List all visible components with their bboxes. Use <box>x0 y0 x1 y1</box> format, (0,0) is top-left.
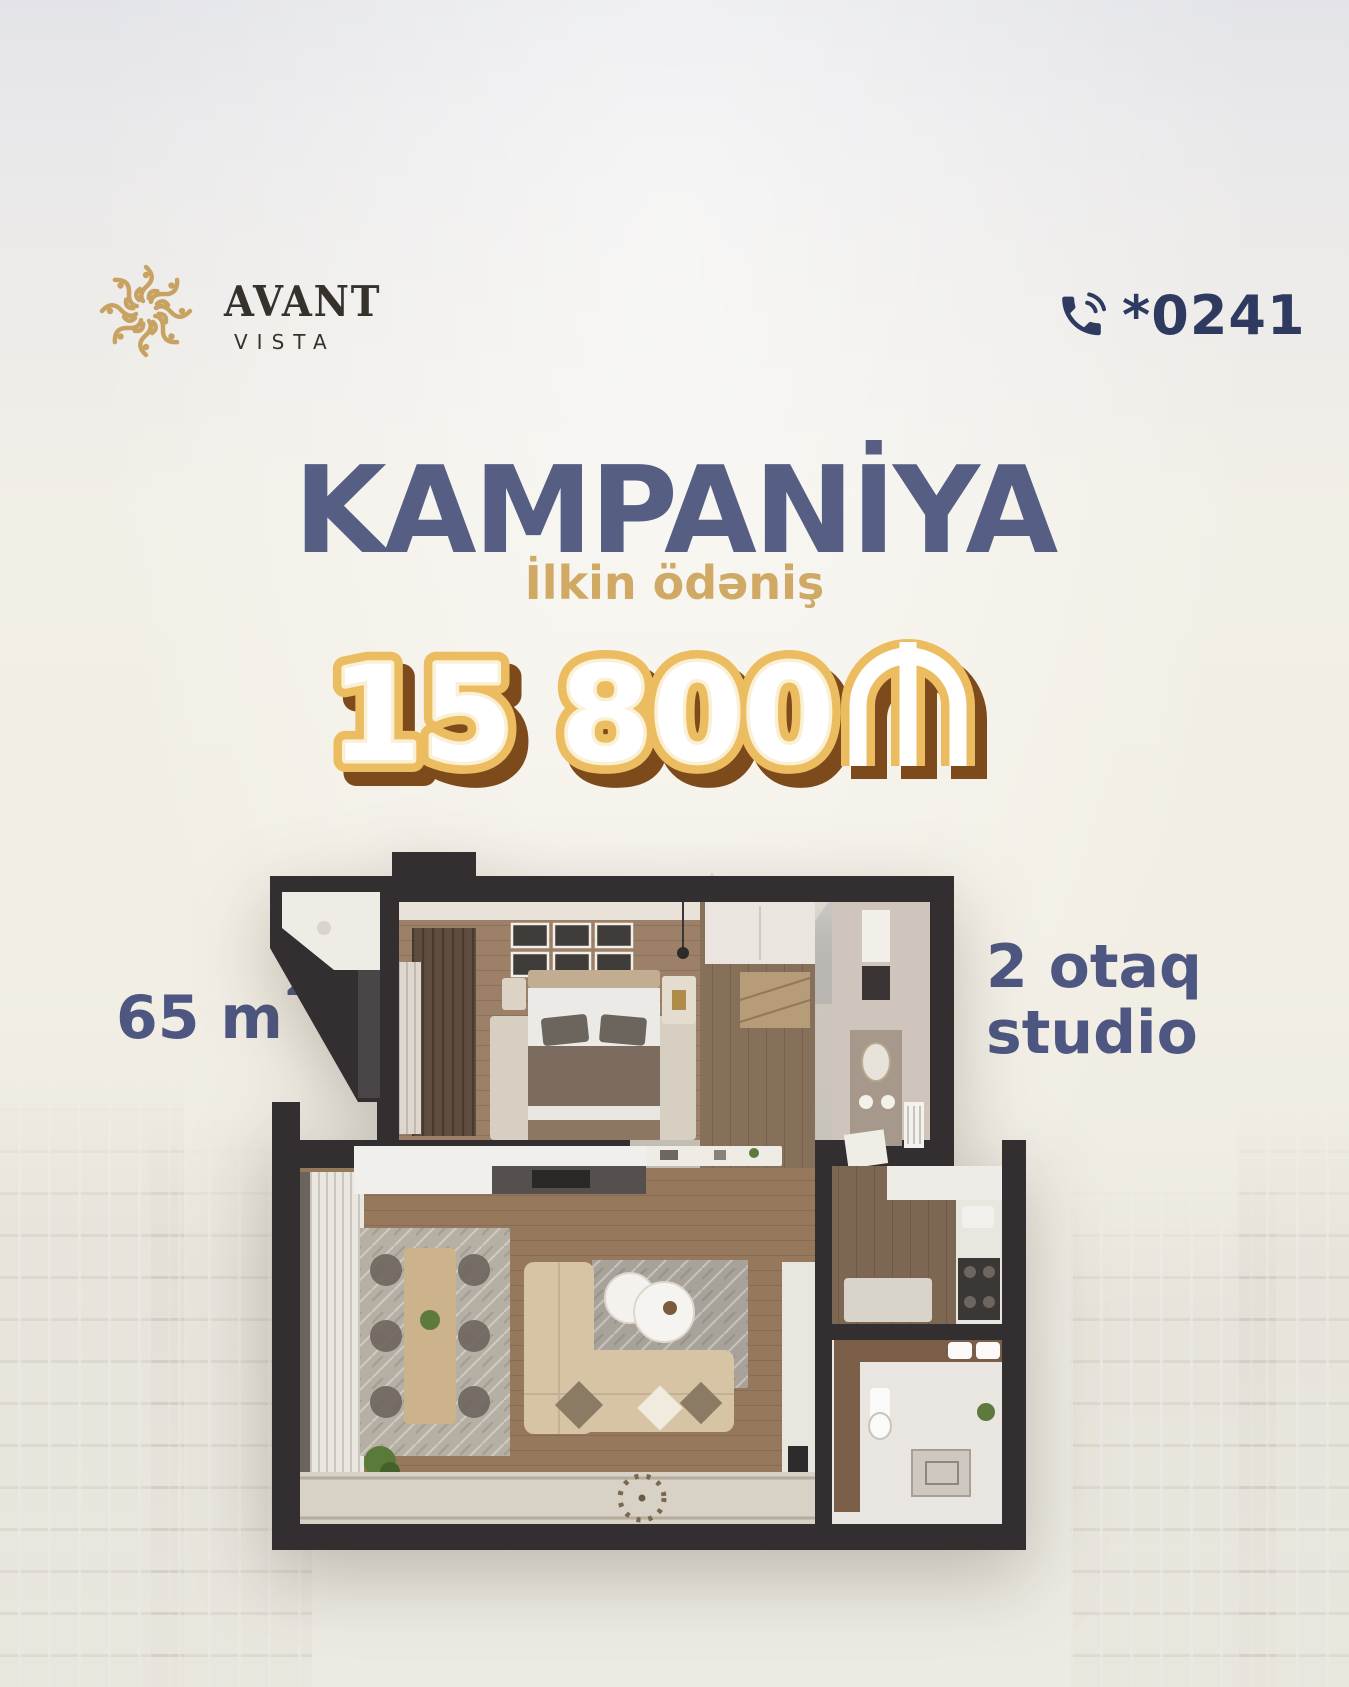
coffee-table-large <box>634 1282 694 1342</box>
manat-symbol-icon <box>858 642 969 779</box>
kitchen-cabinets <box>887 1166 1002 1200</box>
cooktop <box>532 1170 590 1188</box>
phone-contact: *0241 <box>1056 284 1306 347</box>
nightstand-left <box>502 978 526 1010</box>
floor-clock-area <box>300 1472 815 1524</box>
brand-name-top: AVANT <box>224 281 381 323</box>
area-value: 65 m <box>116 983 283 1053</box>
brand-logo: AVANT VISTA <box>90 255 395 367</box>
dining-table <box>404 1248 456 1424</box>
brand-name-bottom: VISTA <box>234 332 395 352</box>
kitchen-island <box>844 1278 932 1322</box>
sink-1 <box>948 1342 972 1359</box>
brand-emblem-icon <box>90 255 202 367</box>
plan-bathroom-top <box>832 902 930 1169</box>
gas-stove <box>958 1258 1000 1320</box>
phone-icon <box>1056 290 1108 342</box>
price-text: 15 800 <box>330 638 835 792</box>
plan-bathroom-bottom <box>832 1340 1002 1524</box>
floor-plan <box>262 850 1030 1564</box>
plan-kitchen <box>832 1166 1002 1324</box>
campaign-subtitle: İlkin ödəniş <box>0 560 1349 606</box>
building-silhouette-right-2 <box>1236 1108 1349 1687</box>
kitchen-sink <box>962 1206 994 1228</box>
plan-bedroom <box>399 902 700 1140</box>
price-display: 15 800 15 800 15 800 <box>300 612 1000 796</box>
plan-living-room <box>300 1146 815 1524</box>
brand-name: AVANT VISTA <box>224 255 395 352</box>
shower <box>912 1450 970 1496</box>
phone-number: *0241 <box>1122 284 1306 347</box>
toilet <box>869 1388 891 1439</box>
floor-plan-svg <box>262 850 1030 1560</box>
mirror <box>862 1043 890 1081</box>
sink-2 <box>976 1342 1000 1359</box>
campaign-title: KAMPANİYA <box>0 452 1349 572</box>
bed <box>528 970 660 1140</box>
bath-plant <box>977 1403 995 1421</box>
poster-background: AVANT VISTA *0241 KAMPANİYA İlkin ödəniş… <box>0 0 1349 1687</box>
bath-door <box>844 1129 888 1168</box>
fireplace <box>788 1446 808 1474</box>
